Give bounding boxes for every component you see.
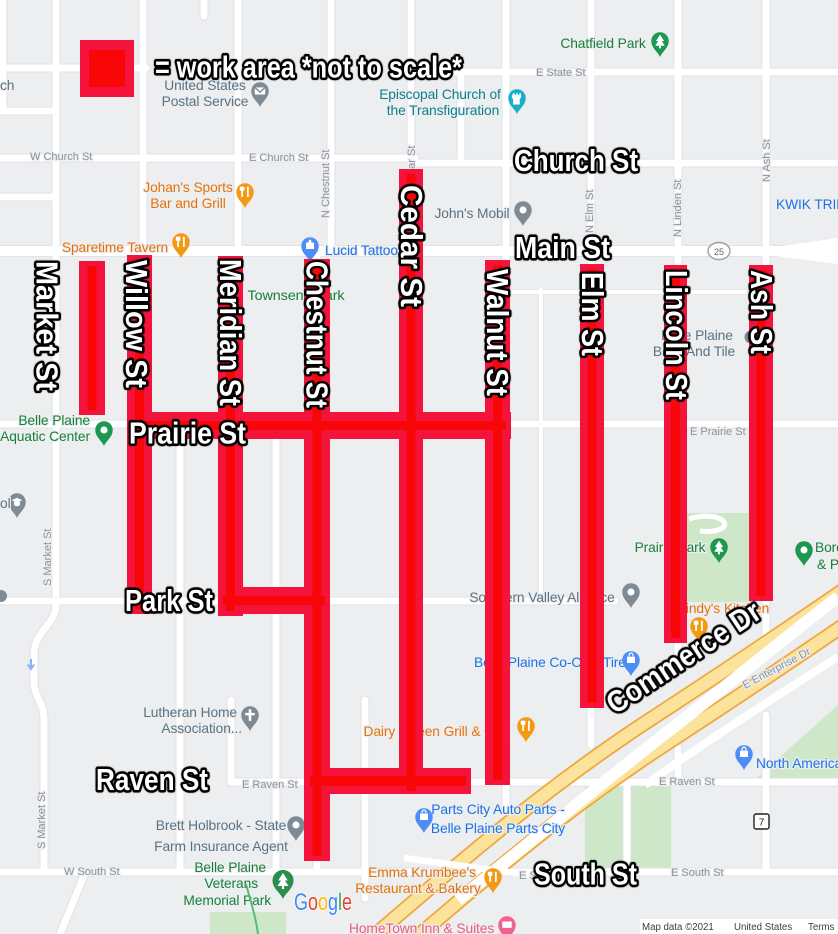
svg-text:ch: ch xyxy=(0,78,14,93)
svg-text:7: 7 xyxy=(759,818,765,829)
svg-text:W South St: W South St xyxy=(64,866,120,878)
svg-text:Church St: Church St xyxy=(514,144,638,178)
svg-text:Willow St: Willow St xyxy=(119,260,153,388)
svg-text:N Linden St: N Linden St xyxy=(672,180,684,237)
svg-text:Terms: Terms xyxy=(808,922,835,933)
svg-text:Lincoln St: Lincoln St xyxy=(659,270,693,400)
svg-text:Prairie St: Prairie St xyxy=(129,417,246,451)
svg-text:Map data ©2021: Map data ©2021 xyxy=(642,922,714,933)
svg-text:W Church St: W Church St xyxy=(30,151,92,163)
svg-text:Cedar St: Cedar St xyxy=(394,185,428,307)
svg-text:Lutheran Home: Lutheran Home xyxy=(143,705,237,720)
svg-text:North American: North American xyxy=(756,756,838,771)
svg-text:Meridian St: Meridian St xyxy=(213,259,247,406)
svg-text:Chatfield Park: Chatfield Park xyxy=(560,36,645,51)
svg-text:N Elm St: N Elm St xyxy=(584,190,596,233)
svg-text:E Prairie St: E Prairie St xyxy=(690,426,746,438)
svg-text:E Raven St: E Raven St xyxy=(659,776,715,788)
svg-text:25: 25 xyxy=(714,247,724,257)
svg-text:Association...: Association... xyxy=(161,721,242,736)
svg-text:S Market St: S Market St xyxy=(36,792,48,849)
svg-text:& Prairie: & Prairie xyxy=(817,557,838,572)
svg-text:South St: South St xyxy=(534,858,637,892)
svg-text:Memorial Park: Memorial Park xyxy=(183,893,271,908)
svg-text:Park St: Park St xyxy=(125,584,213,618)
svg-text:Belle Plaine: Belle Plaine xyxy=(18,413,90,428)
svg-text:E State St: E State St xyxy=(536,67,586,79)
svg-text:the Transfiguration: the Transfiguration xyxy=(387,103,499,118)
svg-text:Veterans: Veterans xyxy=(204,876,258,891)
svg-text:N Chestnut St: N Chestnut St xyxy=(320,150,332,218)
svg-text:ol: ol xyxy=(0,496,11,511)
svg-text:N Ash St: N Ash St xyxy=(761,139,773,182)
svg-text:Restaurant & Bakery: Restaurant & Bakery xyxy=(355,881,481,896)
svg-text:Lucid Tattoo: Lucid Tattoo xyxy=(325,243,398,258)
svg-text:Ash St: Ash St xyxy=(744,270,778,354)
svg-text:Walnut St: Walnut St xyxy=(480,269,514,396)
svg-text:Main St: Main St xyxy=(515,231,610,265)
svg-text:Bar and Grill: Bar and Grill xyxy=(150,196,225,211)
svg-text:Chestnut St: Chestnut St xyxy=(300,261,334,408)
svg-text:E Church St: E Church St xyxy=(249,152,308,164)
svg-text:S Market St: S Market St xyxy=(42,529,54,586)
svg-text:Parts City Auto Parts -: Parts City Auto Parts - xyxy=(431,802,564,817)
svg-text:Postal Service: Postal Service xyxy=(162,94,249,109)
svg-text:Emma Krumbee's: Emma Krumbee's xyxy=(368,865,476,880)
svg-text:E South St: E South St xyxy=(671,867,724,879)
svg-text:United States: United States xyxy=(734,922,792,933)
svg-text:Episcopal Church of: Episcopal Church of xyxy=(379,87,501,102)
svg-text:Belle Plaine Parts City: Belle Plaine Parts City xyxy=(431,821,565,836)
svg-text:Borchert: Borchert xyxy=(815,540,838,555)
svg-text:KWIK TRIP: KWIK TRIP xyxy=(776,197,838,212)
svg-text:= work area *not to scale*: = work area *not to scale* xyxy=(155,51,462,85)
svg-text:Sparetime Tavern: Sparetime Tavern xyxy=(62,240,168,255)
svg-text:Market St: Market St xyxy=(30,261,64,391)
svg-text:Aquatic Center: Aquatic Center xyxy=(0,429,90,444)
svg-text:John's Mobil: John's Mobil xyxy=(434,206,509,221)
svg-text:Elm St: Elm St xyxy=(575,272,609,356)
svg-text:Google: Google xyxy=(294,889,352,916)
svg-text:HomeTown Inn & Suites: HomeTown Inn & Suites xyxy=(349,921,494,934)
svg-text:E Raven St: E Raven St xyxy=(242,779,298,791)
svg-text:Farm Insurance Agent: Farm Insurance Agent xyxy=(154,839,288,854)
svg-text:Belle Plaine: Belle Plaine xyxy=(194,860,266,875)
svg-text:Johan's Sports: Johan's Sports xyxy=(143,180,233,195)
svg-text:Raven St: Raven St xyxy=(96,763,208,797)
svg-text:Brett Holbrook - State: Brett Holbrook - State xyxy=(156,818,287,833)
